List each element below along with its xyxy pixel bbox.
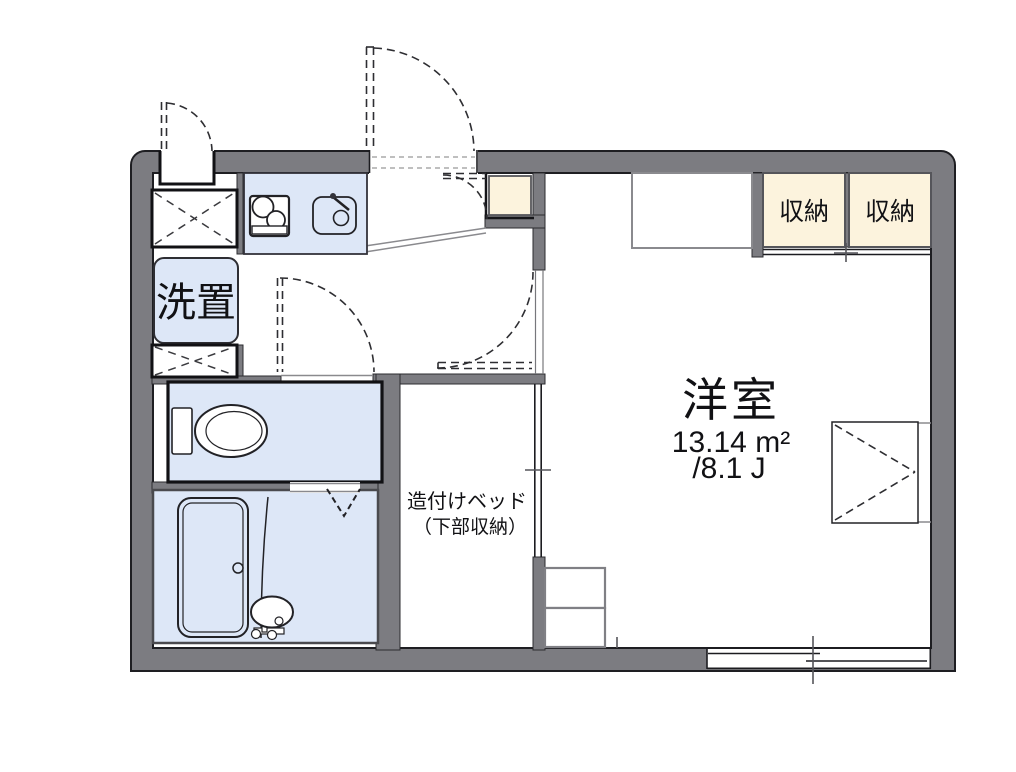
stove-icon [250,196,289,236]
bed-label-line2: （下部収納） [413,516,527,538]
upper-closet [152,190,237,247]
counter-box [632,173,752,248]
main-room-name: 洋室 [682,374,780,426]
entrance-opening [369,149,478,174]
laundry-area: 洗置 [154,258,238,343]
toilet-door-icon [278,278,375,383]
window-opening [707,648,931,669]
closet-right-label: 収納 [865,198,915,226]
shoe-cabinet [489,176,531,215]
meter-niche [160,151,214,184]
bed-steps-icon [545,568,605,647]
toilet-room [168,382,382,482]
bed-label-line1: 造付けベッド [407,490,527,513]
floor-plan-drawing: 洗置 [0,0,1016,772]
entrance-door-icon [366,47,474,151]
kitchen-area [244,173,367,254]
bed-room: 造付けベッド （下部収納） [407,384,551,557]
wall-shelf-icon [832,422,931,523]
hall-door-icon [443,174,487,220]
floor-plan: 洗置 [0,0,1016,772]
closet-left-label: 収納 [779,198,829,226]
main-room: 収納 収納 洋室 13.14 m² /8.1 J [545,173,931,648]
bed-sliding-door-icon [525,384,551,557]
laundry-label: 洗置 [156,281,236,325]
lower-closet [152,345,237,377]
bathroom [153,482,378,643]
main-room-door-icon [437,270,543,374]
toilet-icon [172,405,267,457]
main-room-area-tatami: /8.1 J [692,452,765,485]
